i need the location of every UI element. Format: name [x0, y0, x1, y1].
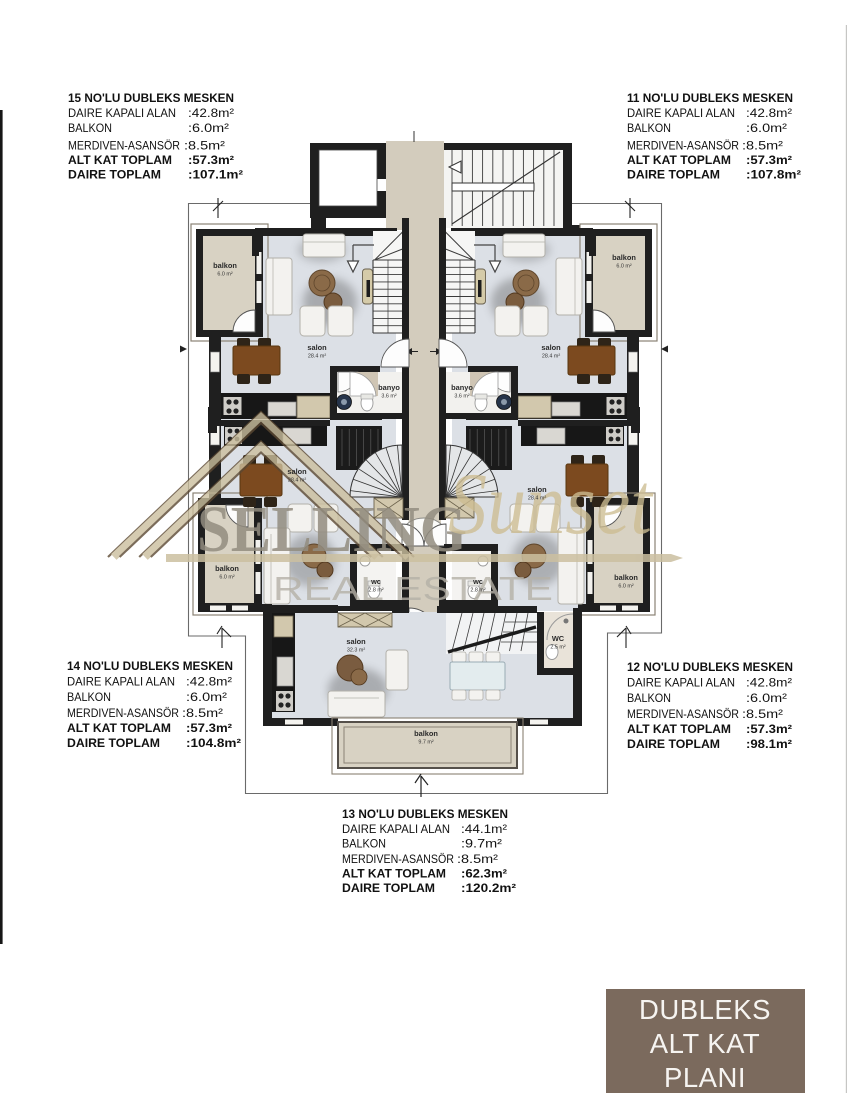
svg-text:15 NO'LU DUBLEKS MESKEN: 15 NO'LU DUBLEKS MESKEN — [68, 91, 234, 105]
svg-text:DUBLEKS: DUBLEKS — [639, 994, 771, 1025]
svg-text:balkon: balkon — [215, 564, 239, 573]
svg-text:32.3 m²: 32.3 m² — [347, 648, 365, 654]
svg-text:3.6 m²: 3.6 m² — [454, 394, 469, 400]
svg-text::9.7m²: :9.7m² — [461, 837, 502, 851]
svg-text:salon: salon — [346, 637, 366, 646]
svg-text:DAIRE KAPALI ALAN: DAIRE KAPALI ALAN — [627, 676, 735, 690]
svg-text:balkon: balkon — [414, 729, 438, 738]
svg-text::62.3m²: :62.3m² — [461, 867, 507, 881]
svg-text::107.1m²: :107.1m² — [188, 168, 243, 182]
svg-text:ALT KAT TOPLAM: ALT KAT TOPLAM — [342, 867, 446, 881]
svg-text:BALKON: BALKON — [68, 121, 112, 135]
svg-text::8.5m²: :8.5m² — [457, 852, 498, 866]
svg-text:14 NO'LU DUBLEKS MESKEN: 14 NO'LU DUBLEKS MESKEN — [67, 659, 233, 673]
svg-text::8.5m²: :8.5m² — [742, 139, 783, 153]
svg-text:wc: wc — [472, 577, 483, 586]
svg-text::120.2m²: :120.2m² — [461, 881, 516, 895]
svg-text:MERDIVEN-ASANSÖR: MERDIVEN-ASANSÖR — [342, 852, 454, 866]
svg-text:PLANI: PLANI — [664, 1062, 746, 1093]
svg-text:MERDIVEN-ASANSÖR: MERDIVEN-ASANSÖR — [67, 706, 179, 720]
svg-text::44.1m²: :44.1m² — [461, 822, 507, 836]
svg-text::8.5m²: :8.5m² — [184, 139, 225, 153]
svg-text:MERDIVEN-ASANSÖR: MERDIVEN-ASANSÖR — [627, 139, 739, 153]
svg-text:DAIRE KAPALI ALAN: DAIRE KAPALI ALAN — [342, 822, 450, 836]
svg-text::42.8m²: :42.8m² — [746, 106, 792, 120]
svg-text::42.8m²: :42.8m² — [746, 676, 792, 690]
svg-text:DAIRE TOPLAM: DAIRE TOPLAM — [342, 881, 435, 895]
svg-text::57.3m²: :57.3m² — [746, 153, 792, 167]
svg-text:banyo: banyo — [378, 383, 400, 392]
svg-text:DAIRE TOPLAM: DAIRE TOPLAM — [67, 736, 160, 750]
svg-text:6.0 m²: 6.0 m² — [616, 264, 631, 270]
svg-text:BALKON: BALKON — [67, 690, 111, 704]
svg-text:DAIRE KAPALI ALAN: DAIRE KAPALI ALAN — [68, 106, 176, 120]
svg-text:ALT KAT TOPLAM: ALT KAT TOPLAM — [627, 722, 731, 736]
svg-text::107.8m²: :107.8m² — [746, 168, 801, 182]
svg-text:BALKON: BALKON — [627, 121, 671, 135]
svg-text::6.0m²: :6.0m² — [188, 121, 229, 135]
svg-text:balkon: balkon — [213, 261, 237, 270]
svg-text:salon: salon — [527, 485, 547, 494]
svg-text:11 NO'LU DUBLEKS MESKEN: 11 NO'LU DUBLEKS MESKEN — [627, 91, 793, 105]
svg-text:DAIRE TOPLAM: DAIRE TOPLAM — [68, 168, 161, 182]
svg-text:BALKON: BALKON — [342, 837, 386, 851]
svg-text:MERDIVEN-ASANSÖR: MERDIVEN-ASANSÖR — [627, 707, 739, 721]
svg-text:6.0 m²: 6.0 m² — [217, 272, 232, 278]
svg-text:ALT KAT TOPLAM: ALT KAT TOPLAM — [67, 721, 171, 735]
svg-text:13 NO'LU DUBLEKS MESKEN: 13 NO'LU DUBLEKS MESKEN — [342, 807, 508, 821]
svg-text:3.6 m²: 3.6 m² — [381, 394, 396, 400]
svg-text:2.8 m²: 2.8 m² — [470, 588, 485, 594]
svg-text:DAIRE KAPALI ALAN: DAIRE KAPALI ALAN — [67, 675, 175, 689]
svg-text:28.4 m²: 28.4 m² — [308, 354, 326, 360]
svg-text:9.7 m²: 9.7 m² — [418, 740, 433, 746]
svg-text::8.5m²: :8.5m² — [742, 707, 783, 721]
svg-text::57.3m²: :57.3m² — [746, 722, 792, 736]
svg-text:wc: wc — [370, 577, 381, 586]
svg-text:DAIRE TOPLAM: DAIRE TOPLAM — [627, 737, 720, 751]
svg-text:ALT KAT TOPLAM: ALT KAT TOPLAM — [627, 153, 731, 167]
svg-text:6.0 m²: 6.0 m² — [219, 575, 234, 581]
svg-text:12 NO'LU DUBLEKS MESKEN: 12 NO'LU DUBLEKS MESKEN — [627, 660, 793, 674]
svg-text:salon: salon — [307, 343, 327, 352]
svg-text:6.0 m²: 6.0 m² — [618, 584, 633, 590]
svg-text:28.4 m²: 28.4 m² — [542, 354, 560, 360]
svg-text:MERDIVEN-ASANSÖR: MERDIVEN-ASANSÖR — [68, 139, 180, 153]
svg-text::98.1m²: :98.1m² — [746, 737, 792, 751]
svg-text::57.3m²: :57.3m² — [186, 721, 232, 735]
svg-text:ALT KAT: ALT KAT — [650, 1028, 760, 1059]
svg-text::6.0m²: :6.0m² — [746, 691, 787, 705]
svg-text::42.8m²: :42.8m² — [186, 675, 232, 689]
svg-text::42.8m²: :42.8m² — [188, 106, 234, 120]
svg-text::8.5m²: :8.5m² — [182, 706, 223, 720]
svg-text::104.8m²: :104.8m² — [186, 736, 241, 750]
svg-text:28.4 m²: 28.4 m² — [288, 478, 306, 484]
svg-text::6.0m²: :6.0m² — [746, 121, 787, 135]
svg-text:28.4 m²: 28.4 m² — [528, 496, 546, 502]
svg-text:2.5 m²: 2.5 m² — [550, 645, 565, 651]
svg-text:salon: salon — [541, 343, 561, 352]
svg-text:BALKON: BALKON — [627, 691, 671, 705]
svg-text:balkon: balkon — [612, 253, 636, 262]
svg-text:balkon: balkon — [614, 573, 638, 582]
svg-text:WC: WC — [552, 634, 565, 643]
svg-text:salon: salon — [287, 467, 307, 476]
svg-text:REAL ESTATE: REAL ESTATE — [273, 570, 553, 607]
svg-text::6.0m²: :6.0m² — [186, 690, 227, 704]
svg-text::57.3m²: :57.3m² — [188, 153, 234, 167]
svg-text:banyo: banyo — [451, 383, 473, 392]
svg-text:DAIRE TOPLAM: DAIRE TOPLAM — [627, 168, 720, 182]
svg-text:2.8 m²: 2.8 m² — [368, 588, 383, 594]
svg-text:ALT KAT TOPLAM: ALT KAT TOPLAM — [68, 153, 172, 167]
svg-text:DAIRE KAPALI ALAN: DAIRE KAPALI ALAN — [627, 106, 735, 120]
svg-text:Sunset: Sunset — [448, 456, 654, 553]
